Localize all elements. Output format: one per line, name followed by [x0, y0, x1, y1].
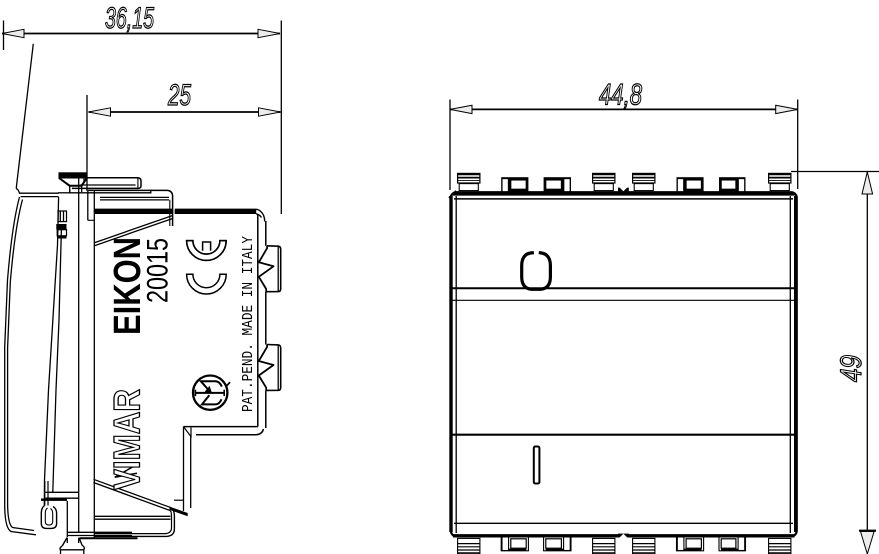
- svg-text:49: 49: [835, 355, 868, 382]
- svg-text:20015: 20015: [142, 238, 175, 303]
- svg-text:VIMAR: VIMAR: [107, 389, 148, 490]
- svg-text:44,8: 44,8: [599, 79, 642, 112]
- svg-text:PAT.PEND. MADE IN ITALY: PAT.PEND. MADE IN ITALY: [240, 236, 257, 412]
- svg-text:36,15: 36,15: [105, 2, 154, 35]
- svg-text:25: 25: [167, 79, 191, 112]
